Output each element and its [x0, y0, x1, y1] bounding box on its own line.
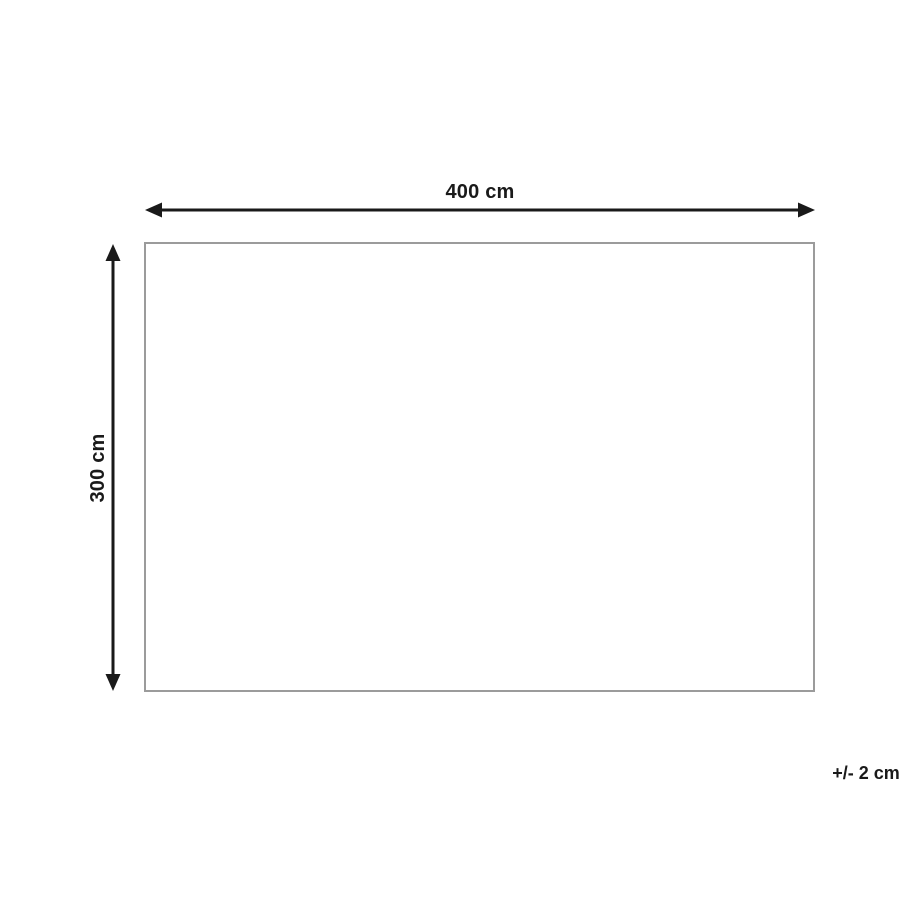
height-arrow-head-top-icon — [106, 244, 121, 261]
width-arrow-head-right-icon — [798, 203, 815, 218]
width-dimension-arrow — [140, 198, 820, 222]
tolerance-label: +/- 2 cm — [826, 762, 906, 784]
height-dimension-arrow — [101, 240, 125, 695]
product-outline-rectangle — [144, 242, 815, 692]
height-arrow-head-bottom-icon — [106, 674, 121, 691]
dimension-diagram: 400 cm 300 cm +/- 2 cm — [0, 0, 920, 920]
width-arrow-head-left-icon — [145, 203, 162, 218]
